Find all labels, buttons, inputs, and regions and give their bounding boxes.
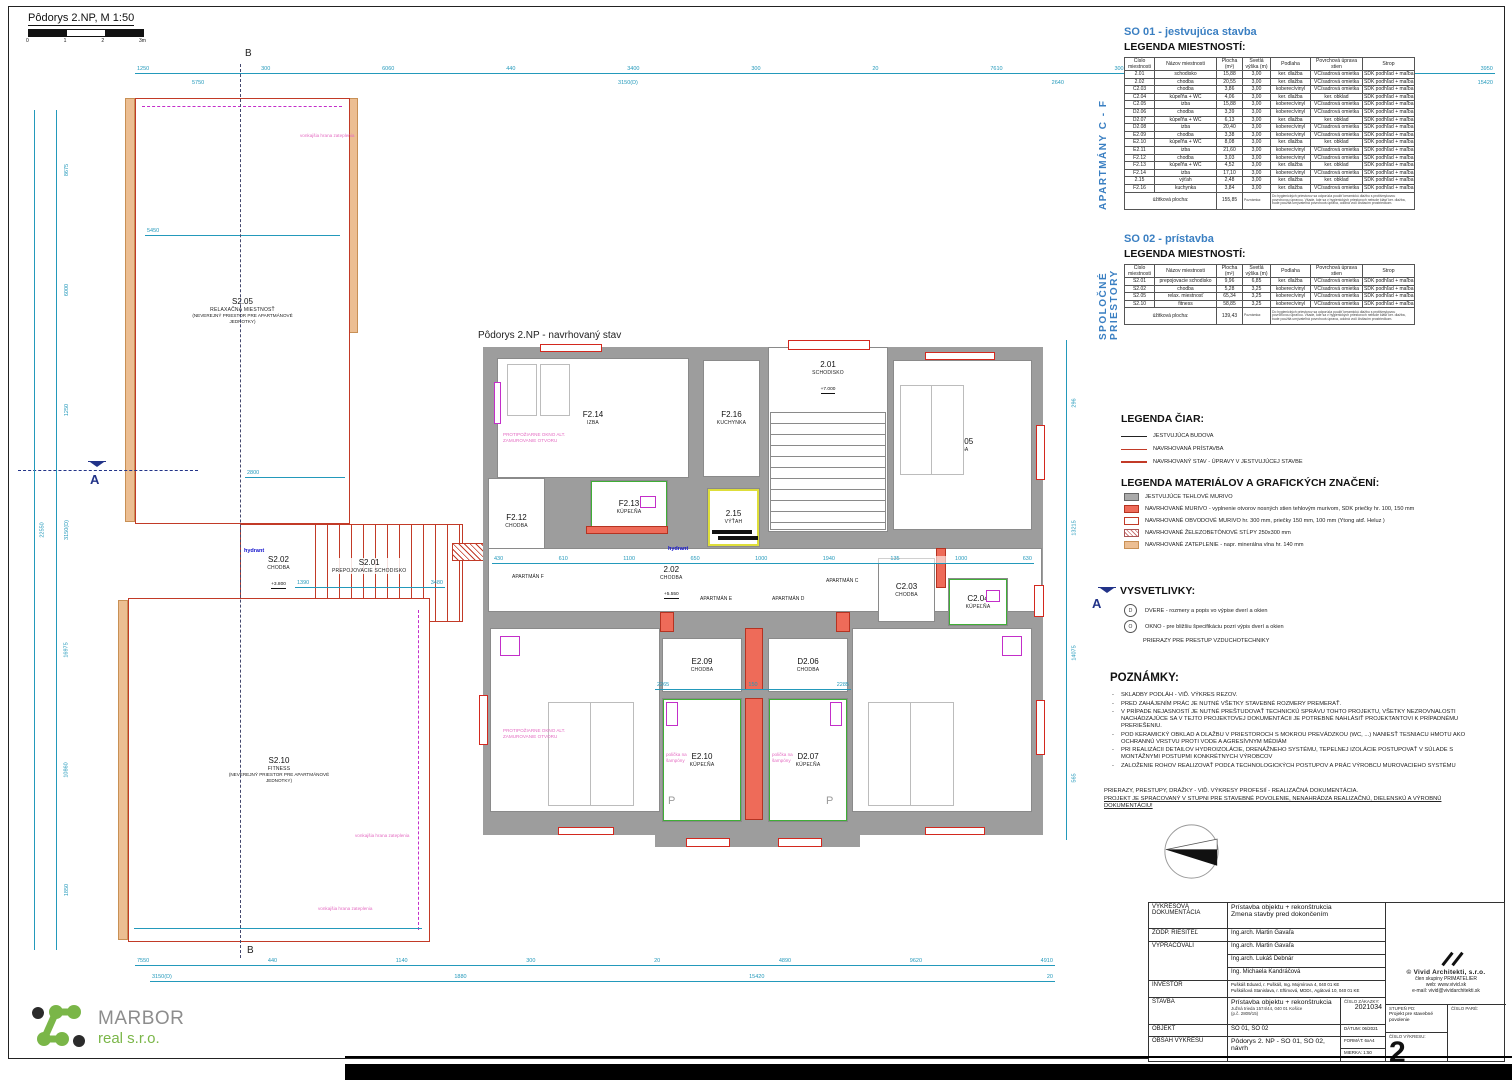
- insulation-strip: [125, 98, 135, 522]
- material-columns-swatch: [1124, 529, 1139, 537]
- door: [1034, 585, 1044, 617]
- bed: [910, 702, 954, 806]
- dim-label: 3480: [429, 580, 445, 587]
- legend-material-item: JESTVUJÚCE TEHLOVÉ MURIVO: [1124, 493, 1233, 501]
- table-cell: prepojovacie schodisko: [1155, 278, 1217, 286]
- column-header: Plocha (m²): [1217, 58, 1243, 71]
- so01-note: Do hygienických priestorov sa odporúča p…: [1271, 192, 1415, 209]
- table-cell: ker. dlažba: [1271, 116, 1311, 124]
- table-cell: VC/sadrová omietka: [1311, 169, 1363, 177]
- window: [540, 344, 602, 352]
- dim-chain-bottom-2: 3150(D)18801542020: [150, 974, 1055, 982]
- insulation-edge-note: vonkajšia hrana zateplenia: [318, 906, 372, 912]
- tb-inv-value: Puškáš Eduard, r. Puškáš, Ing. Mojmírova…: [1228, 981, 1386, 998]
- scale-ticks: 01 23m: [26, 38, 146, 44]
- apartment-label: APARTMÁN F: [512, 574, 544, 580]
- table-cell: ker. obklad: [1311, 139, 1363, 147]
- so01-header-row: Číslo miestnostiNázov miestnostiPlocha (…: [1125, 58, 1415, 71]
- table-cell: S2.02: [1125, 285, 1155, 293]
- fixture: [494, 382, 501, 424]
- table-cell: S2.05: [1125, 293, 1155, 301]
- material-newwall-swatch: [1124, 505, 1139, 513]
- legend-line-item: JESTVUJÚCA BUDOVA: [1121, 433, 1214, 439]
- legend-lines-title: LEGENDA ČIAR:: [1121, 413, 1204, 425]
- table-cell: izba: [1155, 169, 1217, 177]
- table-cell: koberec/vinyl: [1271, 169, 1311, 177]
- dim-label: 4910: [1039, 958, 1055, 965]
- table-cell: koberec/vinyl: [1271, 154, 1311, 162]
- dim-chain-left-inner: 8675600012503150(D)16975108601850: [56, 110, 77, 950]
- legend-material-item: NAVRHOVANÉ ŽELEZOBETÓNOVÉ STĹPY 250x300 …: [1124, 529, 1291, 537]
- table-cell: 3,00: [1243, 139, 1271, 147]
- table-cell: 3,00: [1243, 71, 1271, 79]
- table-cell: 3,00: [1243, 169, 1271, 177]
- so01-footer-value: 155,85: [1217, 192, 1243, 209]
- room-s205: S2.05 RELAXAČNÁ MIESTNOSŤ (NEVEREJNÝ PRI…: [135, 98, 350, 524]
- table-cell: ker. obklad: [1311, 116, 1363, 124]
- table-cell: F2.14: [1125, 169, 1155, 177]
- table-cell: SDK podhľad + maľba: [1363, 93, 1415, 101]
- table-cell: 3,00: [1243, 131, 1271, 139]
- door-symbol-icon: D: [1124, 604, 1137, 617]
- table-cell: 2,48: [1217, 177, 1243, 185]
- dim-label: 13215: [1072, 520, 1078, 535]
- insulation-edge-line: [142, 106, 342, 107]
- table-cell: 3,00: [1243, 101, 1271, 109]
- room-id: S2.02: [267, 555, 290, 565]
- bed: [900, 385, 933, 475]
- tb-zakazka: ČÍSLO ZÁKAZKY: 2021034: [1341, 998, 1386, 1025]
- room-subname: (NEVEREJNÝ PRIESTOR PRE APARTMÁNOVÉ JEDN…: [183, 313, 303, 324]
- insulation-edge-line: [418, 610, 419, 930]
- table-cell: schodisko: [1155, 71, 1217, 79]
- elevator-symbol: [712, 530, 752, 534]
- window: [788, 340, 870, 350]
- sheet-title: Pôdorys 2.NP, M 1:50: [28, 12, 134, 26]
- new-wall: [936, 548, 946, 588]
- table-row: F2.14izba17,103,00koberec/vinylVC/sadrov…: [1125, 169, 1415, 177]
- dim-label: 20: [652, 958, 662, 965]
- table-cell: C2.03: [1125, 86, 1155, 94]
- column-header: Názov miestnosti: [1155, 265, 1217, 278]
- table-cell: SDK podhľad + maľba: [1363, 101, 1415, 109]
- table-cell: D2.07: [1125, 116, 1155, 124]
- dim-label: 22550: [40, 522, 46, 537]
- notes-footer-2: PROJEKT JE SPRACOVANÝ V STUPNI PRE STAVE…: [1104, 796, 1488, 811]
- table-row: D2.07kúpeľňa + WC6,133,00ker. dlažbaker.…: [1125, 116, 1415, 124]
- notes-list: SKLADBY PODLÁH - VIĎ. VÝKRES REZOV.PRED …: [1110, 692, 1488, 771]
- table-cell: VC/sadrová omietka: [1311, 108, 1363, 116]
- line-existing-swatch: [1121, 436, 1147, 437]
- room-f216: F2.16KUCHYNKA: [703, 360, 760, 477]
- dim-label: 5450: [145, 228, 161, 235]
- table-cell: ker. dlažba: [1271, 93, 1311, 101]
- shelf-note: polička na šampóny: [666, 752, 702, 763]
- table-cell: VC/sadrová omietka: [1311, 285, 1363, 293]
- tb-zodp-value: Ing.arch. Martin Gavaľa: [1228, 929, 1386, 942]
- dim-chain-right: 2961321514075565: [1066, 340, 1082, 840]
- table-cell: ker. obklad: [1311, 93, 1363, 101]
- column-header: Podlaha: [1271, 58, 1311, 71]
- so02-header-row: Číslo miestnostiNázov miestnostiPlocha (…: [1125, 265, 1415, 278]
- table-row: 2.02chodba20,553,00ker. dlažbaVC/sadrová…: [1125, 78, 1415, 86]
- table-cell: 3,00: [1243, 124, 1271, 132]
- table-cell: ker. dlažba: [1271, 139, 1311, 147]
- table-cell: 3,00: [1243, 78, 1271, 86]
- notes-title: POZNÁMKY:: [1110, 672, 1179, 684]
- table-cell: SDK podhľad + maľba: [1363, 177, 1415, 185]
- so01-note-label: Poznámka:: [1243, 192, 1271, 209]
- table-cell: 3,00: [1243, 116, 1271, 124]
- table-cell: 2.01: [1125, 71, 1155, 79]
- side-label-apartmany: APARTMÁNY C - F: [1098, 60, 1109, 210]
- dim-label: 20: [870, 66, 880, 73]
- table-cell: SDK podhľad + maľba: [1363, 293, 1415, 301]
- table-cell: chodba: [1155, 131, 1217, 139]
- table-cell: SDK podhľad + maľba: [1363, 108, 1415, 116]
- table-cell: 3,00: [1243, 162, 1271, 170]
- table-cell: E2.10: [1125, 139, 1155, 147]
- column-header: Číslo miestnosti: [1125, 265, 1155, 278]
- section-a-arrow: [1098, 588, 1116, 595]
- logo-name: MARBOR: [98, 1008, 184, 1030]
- footer-line: [345, 1056, 1512, 1058]
- table-cell: kuchynka: [1155, 184, 1217, 192]
- shower: [830, 702, 842, 726]
- dim-label: 1390: [295, 580, 311, 587]
- bed: [931, 385, 964, 475]
- dim-label: 440: [504, 66, 517, 73]
- table-cell: ker. dlažba: [1271, 71, 1311, 79]
- section-b-marker: B: [245, 48, 252, 59]
- dim-label: 300: [259, 66, 272, 73]
- bed: [868, 702, 912, 806]
- shower: [666, 702, 678, 726]
- table-cell: SDK podhľad + maľba: [1363, 146, 1415, 154]
- table-cell: 2.02: [1125, 78, 1155, 86]
- tb-vyp-label: VYPRACOVALI: [1149, 942, 1228, 981]
- table-cell: koberec/vinyl: [1271, 108, 1311, 116]
- table-cell: 3,00: [1243, 154, 1271, 162]
- dim-label: 610: [557, 556, 570, 563]
- so01-footer-label: úžitková plocha:: [1125, 192, 1217, 209]
- dim-label: 1250: [135, 66, 151, 73]
- tb-obsah-value: Pôdorys 2. NP - SO 01, SO 02, návrh: [1228, 1037, 1341, 1062]
- table-row: C2.05izba15,883,00koberec/vinylVC/sadrov…: [1125, 101, 1415, 109]
- so02-title: SO 02 - prístavba: [1124, 233, 1214, 245]
- dim-label: 1000: [753, 556, 769, 563]
- window: [479, 695, 488, 745]
- vysvetlivky-window-item: O OKNO - pre bližšiu špecifikáciu pozri …: [1124, 620, 1284, 633]
- tb-zodp-label: ZODP. RIEŠITEĽ: [1149, 929, 1228, 942]
- dim-label: 3150(D): [64, 520, 70, 540]
- dim-label: 300: [749, 66, 762, 73]
- window: [1036, 425, 1045, 480]
- insulation-strip: [118, 600, 128, 940]
- insulation-edge-note: vonkajšia hrana zateplenia: [355, 833, 409, 839]
- table-row: C2.04kúpeľňa + WC4,063,00ker. dlažbaker.…: [1125, 93, 1415, 101]
- table-cell: 6,13: [1217, 116, 1243, 124]
- table-cell: SDK podhľad + maľba: [1363, 78, 1415, 86]
- table-cell: 20,55: [1217, 78, 1243, 86]
- room-c204: C2.04KÚPEĽŇA: [948, 578, 1008, 626]
- door: [778, 838, 822, 847]
- table-cell: 3,03: [1217, 154, 1243, 162]
- list-item: PRI REALIZÁCII DETAILOV HYDROIZOLÁCIE, D…: [1110, 747, 1488, 761]
- table-cell: VC/sadrová omietka: [1311, 131, 1363, 139]
- table-row: E2.11izba21,603,00koberec/vinylVC/sadrov…: [1125, 146, 1415, 154]
- tb-stavba-label: STAVBA: [1149, 998, 1228, 1025]
- material-insulation-swatch: [1124, 541, 1139, 549]
- apartment-label: APARTMÁN C: [826, 578, 858, 584]
- table-cell: 3,84: [1217, 184, 1243, 192]
- tb-objekt-label: OBJEKT: [1149, 1025, 1228, 1037]
- so02-table: Číslo miestnostiNázov miestnostiPlocha (…: [1124, 264, 1415, 325]
- so01-table: Číslo miestnostiNázov miestnostiPlocha (…: [1124, 57, 1415, 210]
- table-cell: 4,52: [1217, 162, 1243, 170]
- table-cell: ker. dlažba: [1271, 278, 1311, 286]
- table-cell: koberec/vinyl: [1271, 293, 1311, 301]
- table-row: 2.15výťah2,483,00ker. dlažbaker. obkladS…: [1125, 177, 1415, 185]
- tb-pare: ČÍSLO PARÉ:: [1448, 1005, 1506, 1062]
- dim-label: 3400: [625, 66, 641, 73]
- bed: [590, 702, 634, 806]
- plan-center-title: Pôdorys 2.NP - navrhovaný stav: [478, 330, 621, 341]
- bed: [548, 702, 592, 806]
- table-cell: chodba: [1155, 86, 1217, 94]
- dim-chain-left-outer: 22550: [34, 110, 50, 950]
- table-cell: SDK podhľad + maľba: [1363, 278, 1415, 286]
- table-cell: 20,40: [1217, 124, 1243, 132]
- tb-inv-label: INVESTOR: [1149, 981, 1228, 998]
- table-cell: 3,00: [1243, 146, 1271, 154]
- table-cell: 3,86: [1217, 86, 1243, 94]
- dim-label: 8675: [64, 164, 70, 176]
- tb-doc-label: VÝKRESOVÁ DOKUMENTÁCIA: [1149, 903, 1228, 929]
- dim-label: 4890: [777, 958, 793, 965]
- table-row: S2.10fitness58,853,25koberec/vinylVC/sad…: [1125, 300, 1415, 308]
- table-row: S2.02chodba5,283,25koberec/vinylVC/sadro…: [1125, 285, 1415, 293]
- table-cell: SDK podhľad + maľba: [1363, 184, 1415, 192]
- dim-label: 2800: [245, 470, 261, 477]
- table-cell: 6,85: [1243, 278, 1271, 286]
- drawing-number: 2: [1389, 1036, 1406, 1062]
- table-cell: VC/sadrová omietka: [1311, 146, 1363, 154]
- scale-bar: [28, 29, 144, 37]
- tb-objekt-value: SO 01, SO 02: [1228, 1025, 1341, 1037]
- table-cell: chodba: [1155, 108, 1217, 116]
- table-cell: izba: [1155, 124, 1217, 132]
- table-cell: E2.09: [1125, 131, 1155, 139]
- table-cell: koberec/vinyl: [1271, 124, 1311, 132]
- column-header: Svetlá výška (m): [1243, 265, 1271, 278]
- insulation-edge-note: vonkajšia hrana zateplenia: [300, 133, 354, 139]
- table-row: F2.13kúpeľňa + WC4,523,00ker. dlažbaker.…: [1125, 162, 1415, 170]
- so02-footer-label: úžitková plocha:: [1125, 308, 1217, 325]
- vysvetlivky-extra-item: PRIERAZY PRE PRESTUP VZDUCHOTECHNIKY: [1143, 638, 1269, 644]
- dim-label: 7610: [988, 66, 1004, 73]
- firm-name: © Vivid Architekti, s.r.o.: [1407, 969, 1486, 976]
- table-cell: koberec/vinyl: [1271, 146, 1311, 154]
- dim-label: 20: [1045, 974, 1055, 981]
- washer-symbol: P: [826, 795, 833, 807]
- table-cell: kúpeľňa + WC: [1155, 162, 1217, 170]
- fixture: [500, 636, 520, 656]
- table-cell: 3,39: [1217, 108, 1243, 116]
- table-cell: 5,28: [1217, 285, 1243, 293]
- table-cell: F2.16: [1125, 184, 1155, 192]
- table-cell: 3,00: [1243, 177, 1271, 185]
- list-item: POD KERAMICKÝ OBKLAD A DLAŽBU V PRIESTOR…: [1110, 732, 1488, 746]
- legend-materials-title: LEGENDA MATERIÁLOV A GRAFICKÝCH ZNAČENÍ:: [1121, 477, 1379, 489]
- hydrant-label: hydrant: [244, 548, 264, 554]
- stairs-201: [770, 412, 886, 530]
- legend-material-item: NAVRHOVANÉ ZATEPLENIE - napr. minerálna …: [1124, 541, 1304, 549]
- column-header: Svetlá výška (m): [1243, 58, 1271, 71]
- table-cell: koberec/vinyl: [1271, 300, 1311, 308]
- table-row: E2.09chodba3,383,00koberec/vinylVC/sadro…: [1125, 131, 1415, 139]
- table-cell: SDK podhľad + maľba: [1363, 154, 1415, 162]
- table-cell: 3,25: [1243, 293, 1271, 301]
- room-id: S2.10: [219, 756, 339, 766]
- column-header: Povrchová úprava stien: [1311, 58, 1363, 71]
- table-cell: SDK podhľad + maľba: [1363, 86, 1415, 94]
- room-202-label: 2.02 CHODBA +5.550: [660, 565, 683, 601]
- column-header: Strop: [1363, 58, 1415, 71]
- table-row: S2.01prepojovacie schodisko9,966,85ker. …: [1125, 278, 1415, 286]
- dim-label: 150: [746, 682, 759, 689]
- new-wall: [745, 698, 763, 820]
- list-item: V PRÍPADE NEJASNOSTÍ JE NUTNÉ PREŠTUDOVA…: [1110, 709, 1488, 730]
- dim-label: 440: [266, 958, 279, 965]
- table-cell: kúpeľňa + WC: [1155, 116, 1217, 124]
- table-cell: VC/sadrová omietka: [1311, 78, 1363, 86]
- window-symbol-icon: O: [1124, 620, 1137, 633]
- window: [925, 352, 995, 360]
- drawing-sheet: Pôdorys 2.NP, M 1:50 01 23m S2.05 RELAXA…: [0, 0, 1512, 1080]
- so01-footer-row: úžitková plocha: 155,85 Poznámka: Do hyg…: [1125, 192, 1415, 209]
- dim-label: 2265: [655, 682, 671, 689]
- dim-label: 1250: [64, 404, 70, 416]
- washbasin: [640, 496, 656, 508]
- dim-label: 15420: [1476, 80, 1495, 87]
- table-cell: koberec/vinyl: [1271, 285, 1311, 293]
- table-cell: koberec/vinyl: [1271, 86, 1311, 94]
- table-cell: D2.08: [1125, 124, 1155, 132]
- table-cell: 3,25: [1243, 300, 1271, 308]
- hydrant-label: hydrant: [668, 546, 688, 552]
- table-row: S2.05relax. miestnosť65,343,25koberec/vi…: [1125, 293, 1415, 301]
- table-cell: 8,08: [1217, 139, 1243, 147]
- dim-label: 300: [524, 958, 537, 965]
- table-cell: izba: [1155, 146, 1217, 154]
- dim-label: 2640: [1050, 80, 1066, 87]
- table-cell: izba: [1155, 101, 1217, 109]
- table-cell: koberec/vinyl: [1271, 101, 1311, 109]
- table-cell: C2.04: [1125, 93, 1155, 101]
- column-header: Podlaha: [1271, 265, 1311, 278]
- elevator-symbol: [718, 536, 758, 540]
- dim-label: 9620: [908, 958, 924, 965]
- title-block: VÝKRESOVÁ DOKUMENTÁCIA Prístavba objektu…: [1148, 902, 1505, 1062]
- table-cell: C2.05: [1125, 101, 1155, 109]
- table-cell: ker. dlažba: [1271, 177, 1311, 185]
- tb-doc-value: Prístavba objektu + rekonštrukcia Zmena …: [1228, 903, 1386, 929]
- tb-vyp-2: Ing.arch. Lukáš Debnár: [1228, 955, 1386, 968]
- table-cell: VC/sadrová omietka: [1311, 154, 1363, 162]
- legend-line-item: NAVRHOVANÁ PRÍSTAVBA: [1121, 446, 1223, 452]
- room-name: CHODBA: [267, 565, 290, 571]
- dim-chain-e: 22651502285: [655, 682, 851, 690]
- section-a-marker: A: [90, 472, 99, 487]
- table-cell: SDK podhľad + maľba: [1363, 300, 1415, 308]
- table-row: F2.16kuchynka3,843,00ker. dlažbaVC/sadro…: [1125, 184, 1415, 192]
- table-cell: 3,38: [1217, 131, 1243, 139]
- marbor-logo-icon: [30, 1002, 90, 1054]
- dim-label: 7550: [135, 958, 151, 965]
- so02-rows: S2.01prepojovacie schodisko9,966,85ker. …: [1125, 278, 1415, 308]
- section-b-line: [240, 64, 241, 958]
- dim-label: 6000: [64, 284, 70, 296]
- table-cell: 3,00: [1243, 108, 1271, 116]
- table-cell: SDK podhľad + maľba: [1363, 162, 1415, 170]
- so02-note-label: Poznámka:: [1243, 308, 1271, 325]
- tb-format: FORMÁT: 6xA4: [1341, 1037, 1386, 1049]
- table-cell: koberec/vinyl: [1271, 131, 1311, 139]
- table-cell: ker. obklad: [1311, 177, 1363, 185]
- legend-line-item: NAVRHOVANÝ STAV - ÚPRAVY V JESTVUJÚCEJ S…: [1121, 459, 1303, 465]
- shelf-note: polička na šampóny: [772, 752, 808, 763]
- so02-subtitle: LEGENDA MIESTNOSTÍ:: [1124, 248, 1246, 260]
- table-cell: ker. dlažba: [1271, 78, 1311, 86]
- table-cell: E2.11: [1125, 146, 1155, 154]
- list-item: ZALOŽENIE ROHOV REALIZOVAŤ PODĽA TECHNOL…: [1110, 763, 1488, 770]
- window: [558, 827, 614, 835]
- table-cell: S2.10: [1125, 300, 1155, 308]
- dim-label: 1880: [452, 974, 468, 981]
- window: [925, 827, 985, 835]
- section-b-marker: B: [247, 945, 254, 956]
- dim-label: 296: [1072, 398, 1078, 407]
- table-cell: VC/sadrová omietka: [1311, 71, 1363, 79]
- table-cell: SDK podhľad + maľba: [1363, 124, 1415, 132]
- table-cell: SDK podhľad + maľba: [1363, 169, 1415, 177]
- new-wall: [586, 526, 668, 534]
- dim-label: 16975: [64, 642, 70, 657]
- table-cell: 17,10: [1217, 169, 1243, 177]
- room-id: S2.05: [183, 297, 303, 307]
- table-row: D2.08izba20,403,00koberec/vinylVC/sadrov…: [1125, 124, 1415, 132]
- new-wall: [660, 612, 674, 632]
- dim-label: 1140: [394, 958, 410, 965]
- dim-label: 2285: [835, 682, 851, 689]
- table-cell: 21,60: [1217, 146, 1243, 154]
- table-cell: VC/sadrová omietka: [1311, 293, 1363, 301]
- list-item: PRED ZAHÁJENÍM PRÁC JE NUTNÉ VŠETKY STAV…: [1110, 701, 1488, 708]
- notes-footer: PRIERAZY, PRESTUPY, DRÁŽKY - VIĎ. VÝKRES…: [1104, 788, 1488, 811]
- so01-rows: 2.01schodisko15,883,00ker. dlažbaVC/sadr…: [1125, 71, 1415, 193]
- so02-footer-row: úžitková plocha: 139,43 Poznámka: Do hyg…: [1125, 308, 1415, 325]
- section-a-marker: A: [1092, 596, 1101, 611]
- table-cell: VC/sadrová omietka: [1311, 124, 1363, 132]
- dim-label: 1000: [953, 556, 969, 563]
- legend-material-item: NAVRHOVANÉ MURIVO - vyplnenie otvorov no…: [1124, 505, 1414, 513]
- legend-material-item: NAVRHOVANÉ OBVODOVÉ MURIVO hr. 300 mm, p…: [1124, 517, 1385, 525]
- new-wall: [745, 628, 763, 690]
- table-cell: ker. dlažba: [1271, 184, 1311, 192]
- dim-label: 3950: [1479, 66, 1495, 73]
- table-cell: S2.01: [1125, 278, 1155, 286]
